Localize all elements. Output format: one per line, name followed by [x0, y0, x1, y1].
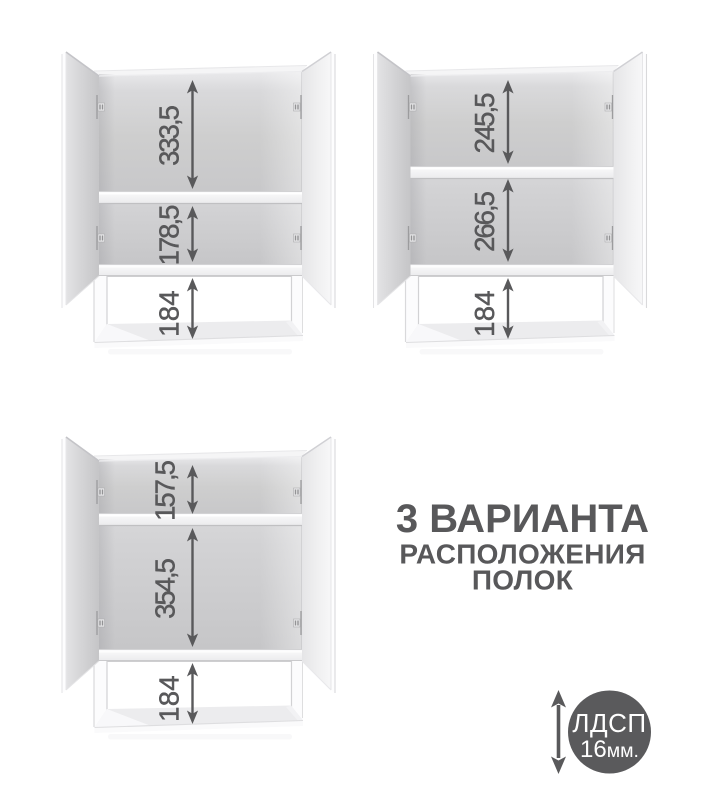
- svg-text:ЛДСП: ЛДСП: [572, 708, 646, 738]
- svg-text:184: 184: [469, 290, 500, 337]
- svg-text:354,5: 354,5: [150, 558, 181, 619]
- svg-text:3 ВАРИАНТА: 3 ВАРИАНТА: [396, 497, 649, 541]
- svg-text:184: 184: [154, 290, 185, 337]
- svg-text:157,5: 157,5: [150, 460, 181, 521]
- svg-text:ПОЛОК: ПОЛОК: [472, 565, 574, 596]
- svg-text:16мм.: 16мм.: [580, 736, 639, 763]
- svg-text:184: 184: [154, 675, 185, 722]
- svg-text:266,5: 266,5: [469, 191, 500, 252]
- svg-text:333,5: 333,5: [154, 105, 185, 166]
- svg-text:245,5: 245,5: [469, 93, 500, 154]
- svg-text:178,5: 178,5: [154, 205, 185, 266]
